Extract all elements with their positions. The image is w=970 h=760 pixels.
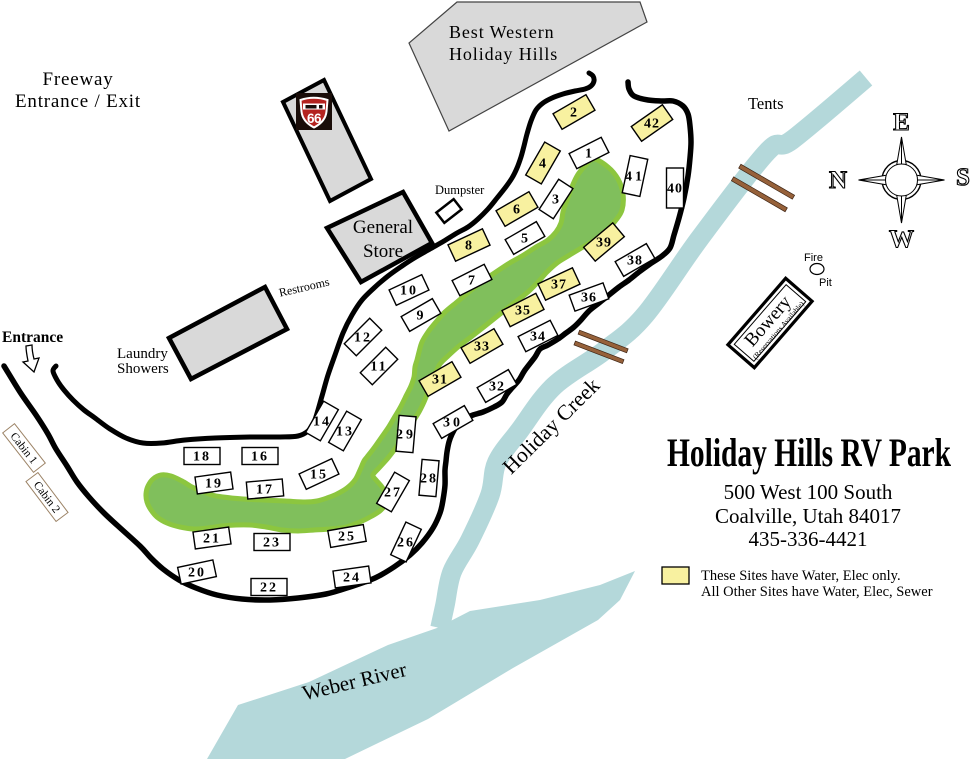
svg-text:Freeway: Freeway xyxy=(42,69,113,90)
svg-text:12: 12 xyxy=(354,331,372,346)
svg-text:36: 36 xyxy=(581,291,597,306)
svg-text:16: 16 xyxy=(251,450,269,465)
svg-text:N: N xyxy=(829,167,847,194)
svg-text:All Other Sites have Water, El: All Other Sites have Water, Elec, Sewer xyxy=(701,584,933,600)
svg-text:Tents: Tents xyxy=(748,94,784,113)
svg-text:37: 37 xyxy=(551,278,567,293)
svg-text:Fire: Fire xyxy=(804,252,823,264)
svg-text:11: 11 xyxy=(370,360,387,375)
svg-text:4: 4 xyxy=(539,157,547,172)
svg-text:6: 6 xyxy=(513,203,521,218)
svg-text:39: 39 xyxy=(596,236,612,251)
svg-text:22: 22 xyxy=(260,581,278,596)
svg-text:14: 14 xyxy=(313,415,331,430)
svg-text:18: 18 xyxy=(193,450,211,465)
svg-text:Holiday Hills RV Park: Holiday Hills RV Park xyxy=(667,430,952,475)
svg-text:5: 5 xyxy=(521,232,529,247)
svg-text:Coalville, Utah 84017: Coalville, Utah 84017 xyxy=(715,504,901,528)
svg-text:Entrance / Exit: Entrance / Exit xyxy=(15,91,141,112)
svg-text:9: 9 xyxy=(417,309,426,324)
svg-text:42: 42 xyxy=(644,117,660,132)
svg-text:Showers: Showers xyxy=(117,361,169,377)
svg-text:500 West 100 South: 500 West 100 South xyxy=(724,480,893,504)
svg-text:24: 24 xyxy=(343,571,361,586)
svg-text:33: 33 xyxy=(474,340,490,355)
svg-text:General: General xyxy=(353,217,413,238)
svg-text:E: E xyxy=(893,109,910,136)
svg-text:Best Western: Best Western xyxy=(449,22,555,42)
svg-text:20: 20 xyxy=(188,566,206,581)
svg-text:1: 1 xyxy=(585,147,593,162)
svg-text:S: S xyxy=(956,164,970,191)
svg-text:25: 25 xyxy=(338,530,356,545)
svg-text:23: 23 xyxy=(263,536,281,551)
svg-text:3: 3 xyxy=(552,193,560,208)
svg-text:41: 41 xyxy=(625,170,645,185)
svg-text:W: W xyxy=(889,226,914,253)
svg-text:Entrance: Entrance xyxy=(2,329,63,346)
svg-text:29: 29 xyxy=(396,428,416,443)
svg-text:8: 8 xyxy=(465,239,473,254)
svg-text:32: 32 xyxy=(489,380,505,395)
svg-text:13: 13 xyxy=(336,425,354,440)
svg-text:40: 40 xyxy=(667,182,683,197)
svg-text:31: 31 xyxy=(432,373,448,388)
svg-text:34: 34 xyxy=(530,330,546,345)
svg-text:19: 19 xyxy=(205,477,223,492)
svg-text:17: 17 xyxy=(256,483,274,498)
svg-text:35: 35 xyxy=(515,304,531,319)
svg-text:10: 10 xyxy=(400,284,418,299)
svg-text:28: 28 xyxy=(420,472,438,487)
svg-text:27: 27 xyxy=(384,486,402,501)
svg-text:38: 38 xyxy=(627,254,643,269)
svg-text:15: 15 xyxy=(310,468,328,483)
svg-text:66: 66 xyxy=(307,111,322,126)
svg-text:21: 21 xyxy=(203,532,221,547)
svg-text:7: 7 xyxy=(468,274,476,289)
svg-text:Holiday Hills: Holiday Hills xyxy=(449,44,558,64)
svg-text:2: 2 xyxy=(570,106,578,121)
svg-text:Dumpster: Dumpster xyxy=(435,183,485,197)
svg-text:Laundry: Laundry xyxy=(117,346,168,362)
svg-text:435-336-4421: 435-336-4421 xyxy=(749,527,868,551)
svg-text:Store: Store xyxy=(363,241,403,262)
svg-text:30: 30 xyxy=(443,416,463,431)
svg-text:26: 26 xyxy=(397,536,415,551)
svg-text:These Sites have Water, Elec o: These Sites have Water, Elec only. xyxy=(701,568,901,584)
svg-text:Pit: Pit xyxy=(819,277,832,289)
